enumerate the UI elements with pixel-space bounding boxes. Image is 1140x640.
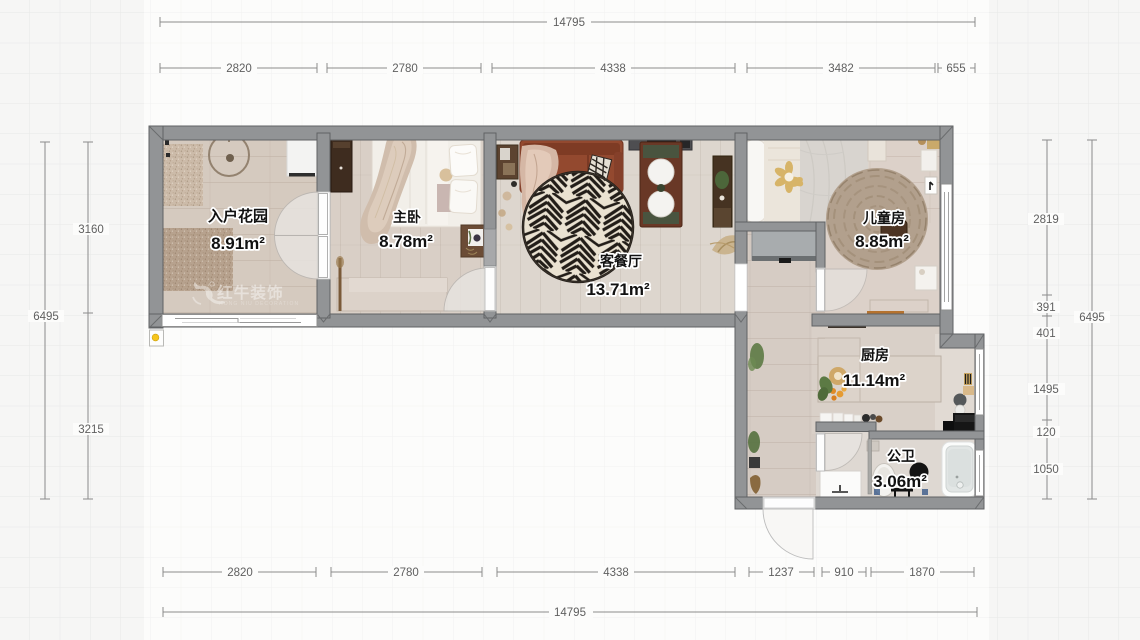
svg-text:主卧: 主卧 [393,209,421,225]
svg-text:14795: 14795 [554,607,586,619]
svg-text:2780: 2780 [393,567,419,579]
svg-text:厨房: 厨房 [861,347,889,363]
svg-text:1495: 1495 [1033,384,1059,396]
svg-text:HONG NIU DECORATION: HONG NIU DECORATION [219,301,299,307]
svg-text:8.91m²: 8.91m² [211,234,265,253]
svg-text:3215: 3215 [78,424,104,436]
svg-text:13.71m²: 13.71m² [586,280,650,299]
svg-text:客餐厅: 客餐厅 [599,253,642,269]
svg-text:儿童房: 儿童房 [862,210,905,226]
svg-text:1870: 1870 [909,567,935,579]
svg-text:入户花园: 入户花园 [208,207,268,225]
svg-text:2780: 2780 [392,63,418,75]
svg-text:14795: 14795 [553,17,585,29]
svg-text:655: 655 [946,63,965,75]
svg-text:391: 391 [1036,302,1055,314]
svg-text:3160: 3160 [78,224,104,236]
svg-text:8.78m²: 8.78m² [379,232,433,251]
svg-text:1050: 1050 [1033,464,1059,476]
svg-text:3482: 3482 [828,63,854,75]
svg-text:910: 910 [834,567,853,579]
svg-text:6495: 6495 [33,311,59,323]
svg-text:公卫: 公卫 [887,448,915,464]
svg-text:1237: 1237 [768,567,794,579]
svg-text:120: 120 [1036,427,1055,439]
svg-text:2820: 2820 [226,63,252,75]
svg-text:4338: 4338 [600,63,626,75]
svg-text:6495: 6495 [1079,312,1105,324]
svg-text:2819: 2819 [1033,214,1059,226]
svg-text:401: 401 [1036,328,1055,340]
svg-text:3.06m²: 3.06m² [873,472,927,491]
svg-text:11.14m²: 11.14m² [843,371,906,390]
svg-text:8.85m²: 8.85m² [855,232,909,251]
svg-text:2820: 2820 [227,567,253,579]
svg-text:红牛装饰: 红牛装饰 [217,283,284,302]
svg-text:4338: 4338 [603,567,629,579]
